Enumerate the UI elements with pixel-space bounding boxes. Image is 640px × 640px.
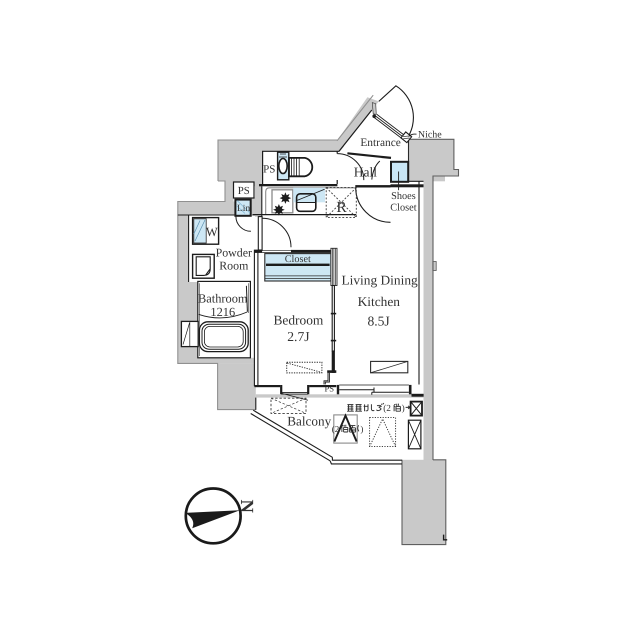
svg-text:N: N — [236, 500, 256, 514]
svg-text:2.7J: 2.7J — [287, 329, 309, 344]
svg-text:8.5J: 8.5J — [367, 313, 389, 328]
svg-text:PS: PS — [238, 185, 250, 197]
svg-text:): ) — [360, 424, 363, 434]
svg-text:(2: (2 — [332, 424, 340, 434]
svg-text:(2: (2 — [383, 404, 391, 414]
svg-text:Shoes: Shoes — [391, 191, 416, 202]
svg-text:Powder: Powder — [216, 245, 252, 259]
svg-text:Entrance: Entrance — [360, 137, 400, 149]
svg-text:W: W — [206, 225, 218, 239]
svg-text:Closet: Closet — [285, 254, 311, 265]
svg-text:Bedroom: Bedroom — [273, 313, 323, 328]
svg-text:): ) — [402, 404, 405, 414]
svg-text:Kitchen: Kitchen — [358, 294, 401, 309]
svg-text:Room: Room — [219, 258, 249, 272]
svg-text:PS: PS — [263, 163, 275, 175]
svg-text:Niche: Niche — [418, 130, 442, 141]
svg-text:Bathroom: Bathroom — [198, 292, 248, 306]
svg-text:Closet: Closet — [390, 202, 416, 213]
svg-text:R: R — [336, 199, 347, 216]
svg-text:Lin: Lin — [237, 204, 250, 214]
svg-text:1216: 1216 — [210, 305, 235, 319]
svg-text:Balcony: Balcony — [287, 413, 331, 428]
svg-text:Living Dining: Living Dining — [341, 273, 418, 288]
